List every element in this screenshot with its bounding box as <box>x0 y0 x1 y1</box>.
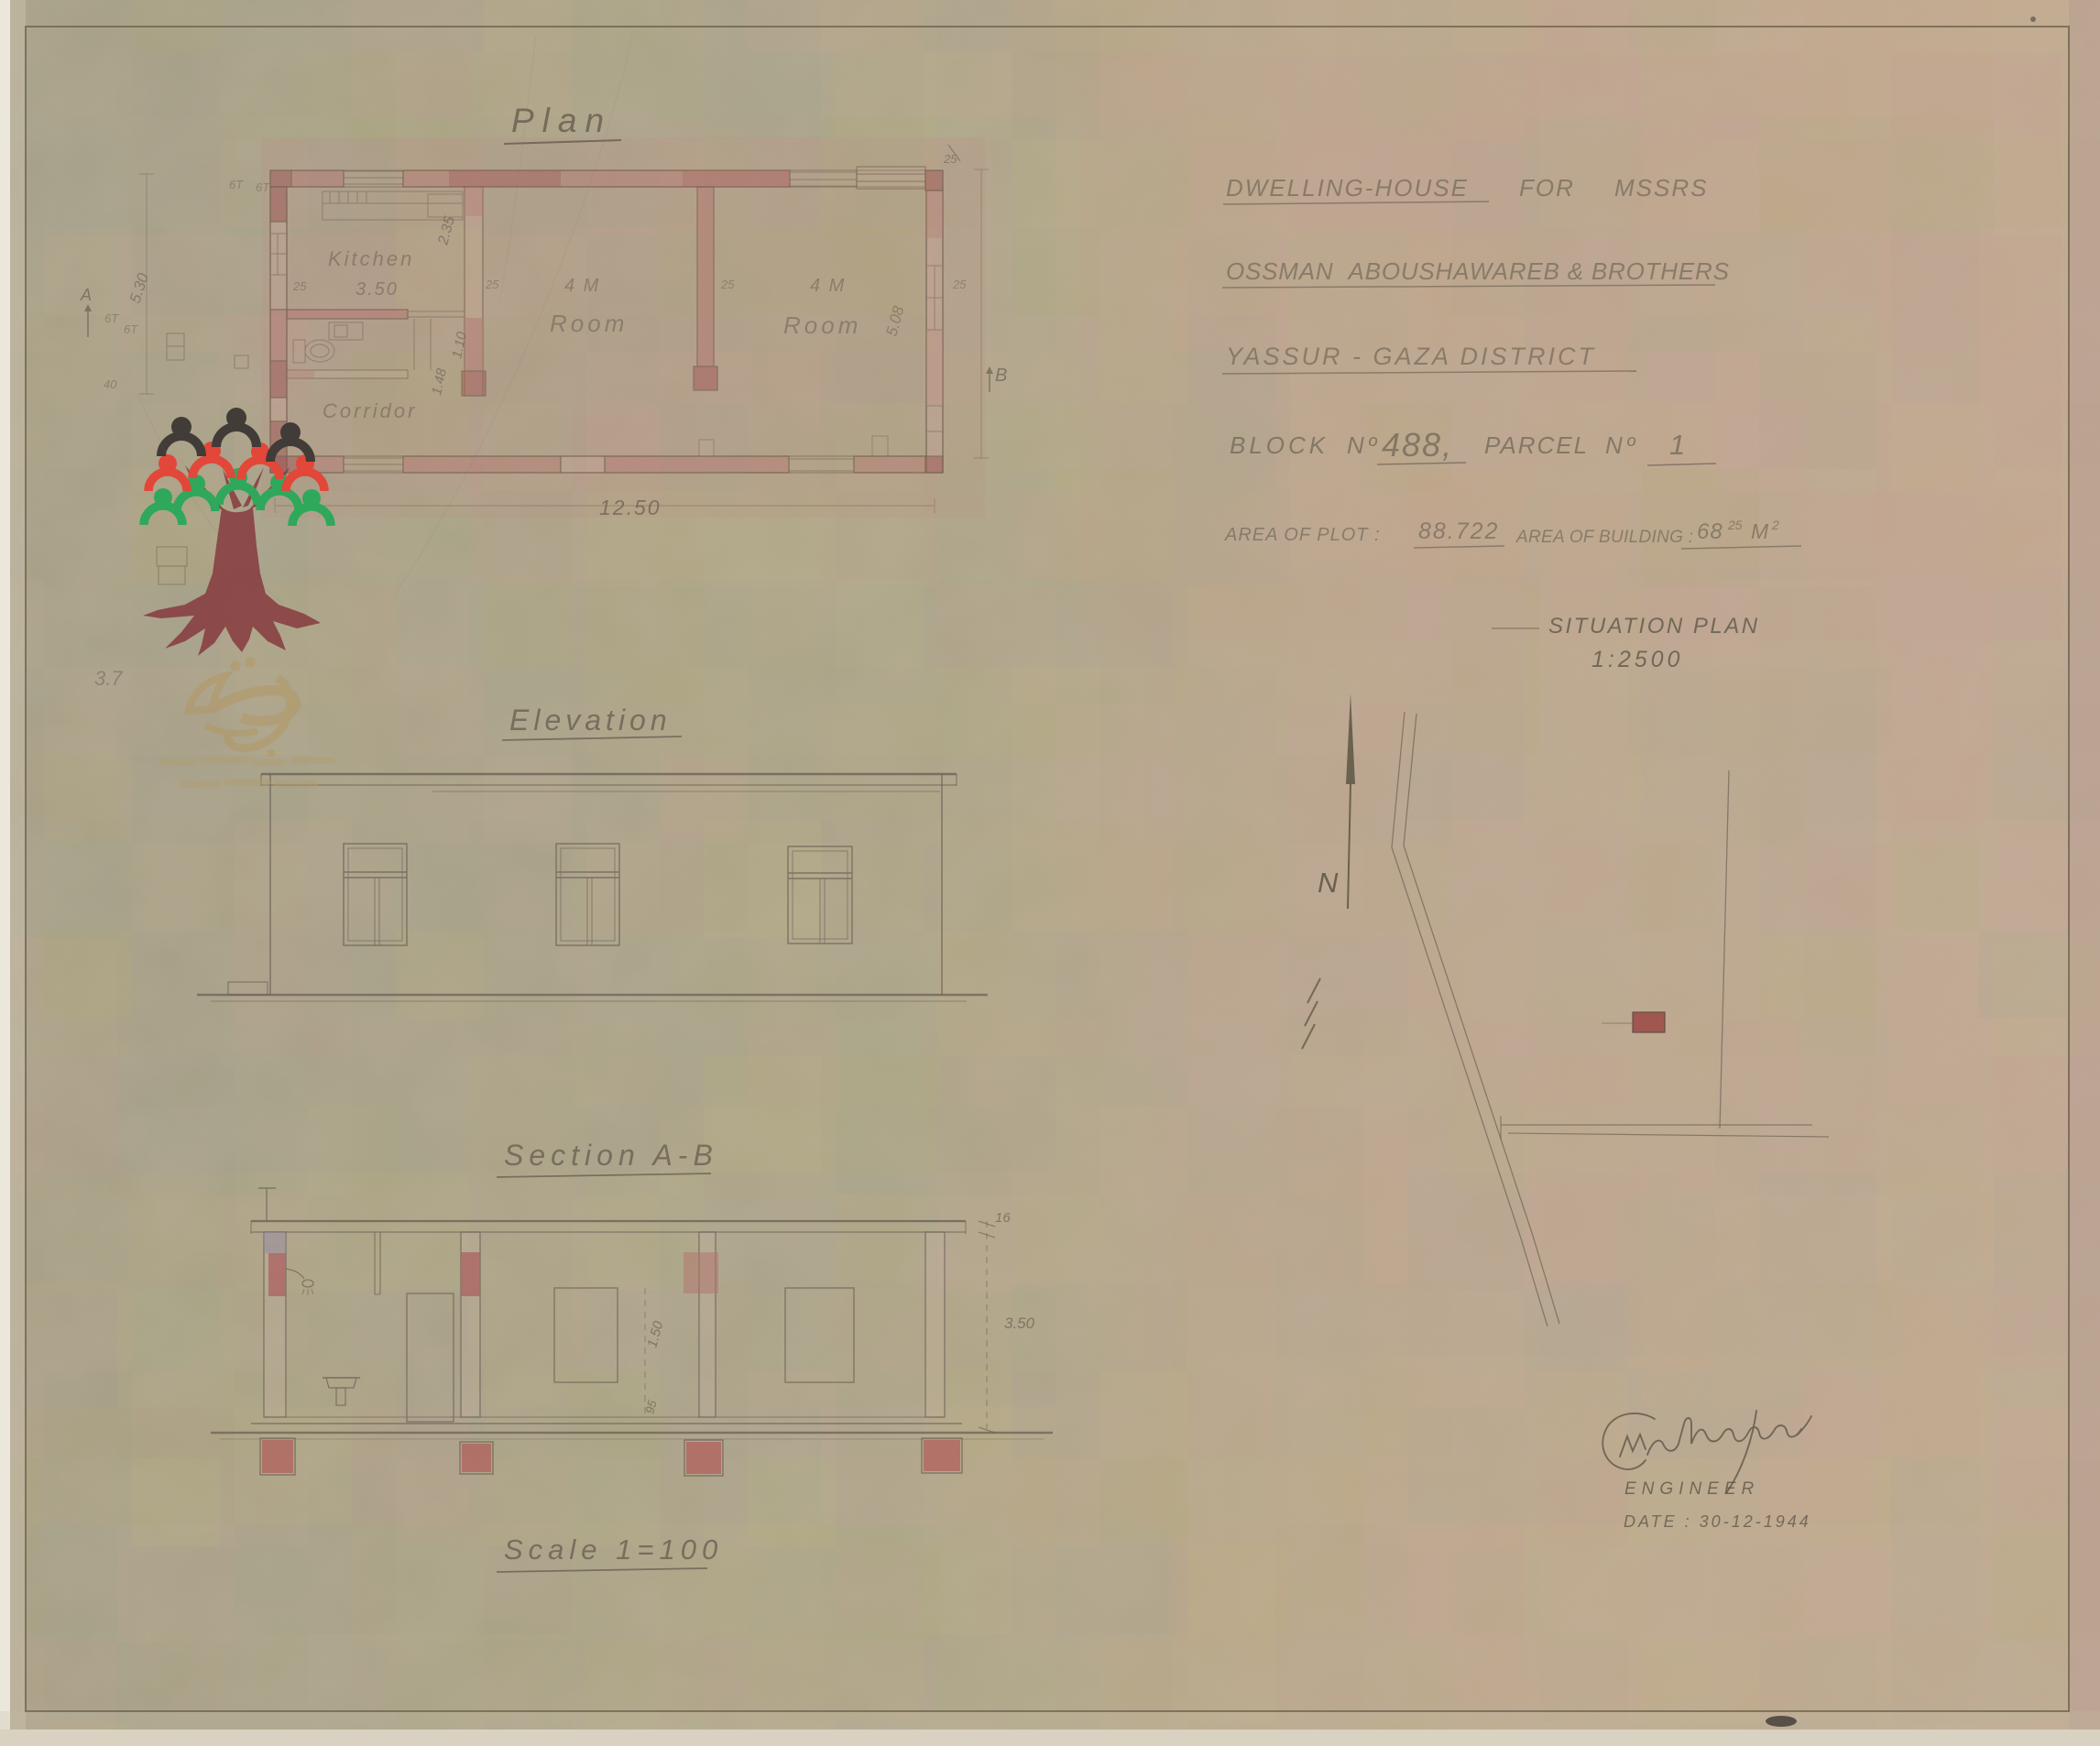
svg-text:B: B <box>995 366 1007 386</box>
svg-text:Room: Room <box>550 310 628 337</box>
svg-text:N: N <box>1318 867 1339 899</box>
svg-text:3.50: 3.50 <box>355 279 399 300</box>
svg-text:DWELLING-HOUSEFORMSSRS: DWELLING-HOUSEFORMSSRS <box>1226 174 1708 202</box>
svg-text:16: 16 <box>995 1210 1011 1226</box>
svg-text:M: M <box>1751 519 1769 543</box>
svg-text:1.50: 1.50 <box>644 1319 666 1349</box>
svg-text:25: 25 <box>943 152 957 166</box>
svg-text:OSSMAN ABOUSHAWAREB & BROTHER: OSSMAN ABOUSHAWAREB & BROTHERS <box>1226 257 1730 285</box>
svg-text:ENGINEER: ENGINEER <box>1624 1479 1759 1499</box>
svg-text:88.722: 88.722 <box>1418 518 1499 544</box>
svg-text:4 M: 4 M <box>810 276 846 296</box>
svg-text:Room: Room <box>783 311 861 339</box>
svg-text:Elevation: Elevation <box>509 704 672 737</box>
svg-text:Section A-B: Section A-B <box>504 1139 718 1172</box>
svg-text:1: 1 <box>1669 429 1685 461</box>
svg-text:40: 40 <box>104 377 117 391</box>
svg-text:3.7: 3.7 <box>94 667 123 690</box>
svg-text:3.50: 3.50 <box>1004 1315 1035 1332</box>
svg-text:Kitchen: Kitchen <box>328 247 414 270</box>
svg-text:12.50: 12.50 <box>599 496 662 519</box>
svg-text:AREA OF PLOT :: AREA OF PLOT : <box>1224 525 1381 545</box>
svg-text:1:2500: 1:2500 <box>1591 647 1683 672</box>
svg-text:25: 25 <box>720 278 735 291</box>
svg-text:Corridor: Corridor <box>323 399 417 422</box>
svg-text:DATE : 30-12-1944: DATE : 30-12-1944 <box>1624 1512 1811 1531</box>
svg-text:95: 95 <box>642 1398 659 1415</box>
svg-text:4 M: 4 M <box>564 276 600 296</box>
svg-text:6T: 6T <box>229 178 244 191</box>
svg-text:25: 25 <box>292 279 307 293</box>
svg-text:488,: 488, <box>1382 426 1453 464</box>
svg-text:6T: 6T <box>256 180 270 194</box>
svg-text:1.48: 1.48 <box>429 366 450 397</box>
svg-text:AREA OF BUILDING :: AREA OF BUILDING : <box>1515 528 1693 547</box>
svg-text:A: A <box>80 286 92 304</box>
svg-text:25: 25 <box>485 278 499 291</box>
svg-text:6T: 6T <box>124 322 138 336</box>
svg-text:25: 25 <box>1727 518 1743 532</box>
svg-text:25: 25 <box>952 278 967 291</box>
svg-text:Scale 1=100: Scale 1=100 <box>504 1533 723 1566</box>
svg-text:SITUATION PLAN: SITUATION PLAN <box>1548 614 1760 638</box>
svg-text:5.08: 5.08 <box>883 304 908 338</box>
svg-text:YASSUR - GAZA DISTRICT: YASSUR - GAZA DISTRICT <box>1226 343 1596 370</box>
svg-text:2: 2 <box>1771 518 1779 532</box>
svg-text:5.30: 5.30 <box>126 270 152 305</box>
svg-text:6T: 6T <box>104 311 119 325</box>
svg-text:68: 68 <box>1697 519 1723 544</box>
